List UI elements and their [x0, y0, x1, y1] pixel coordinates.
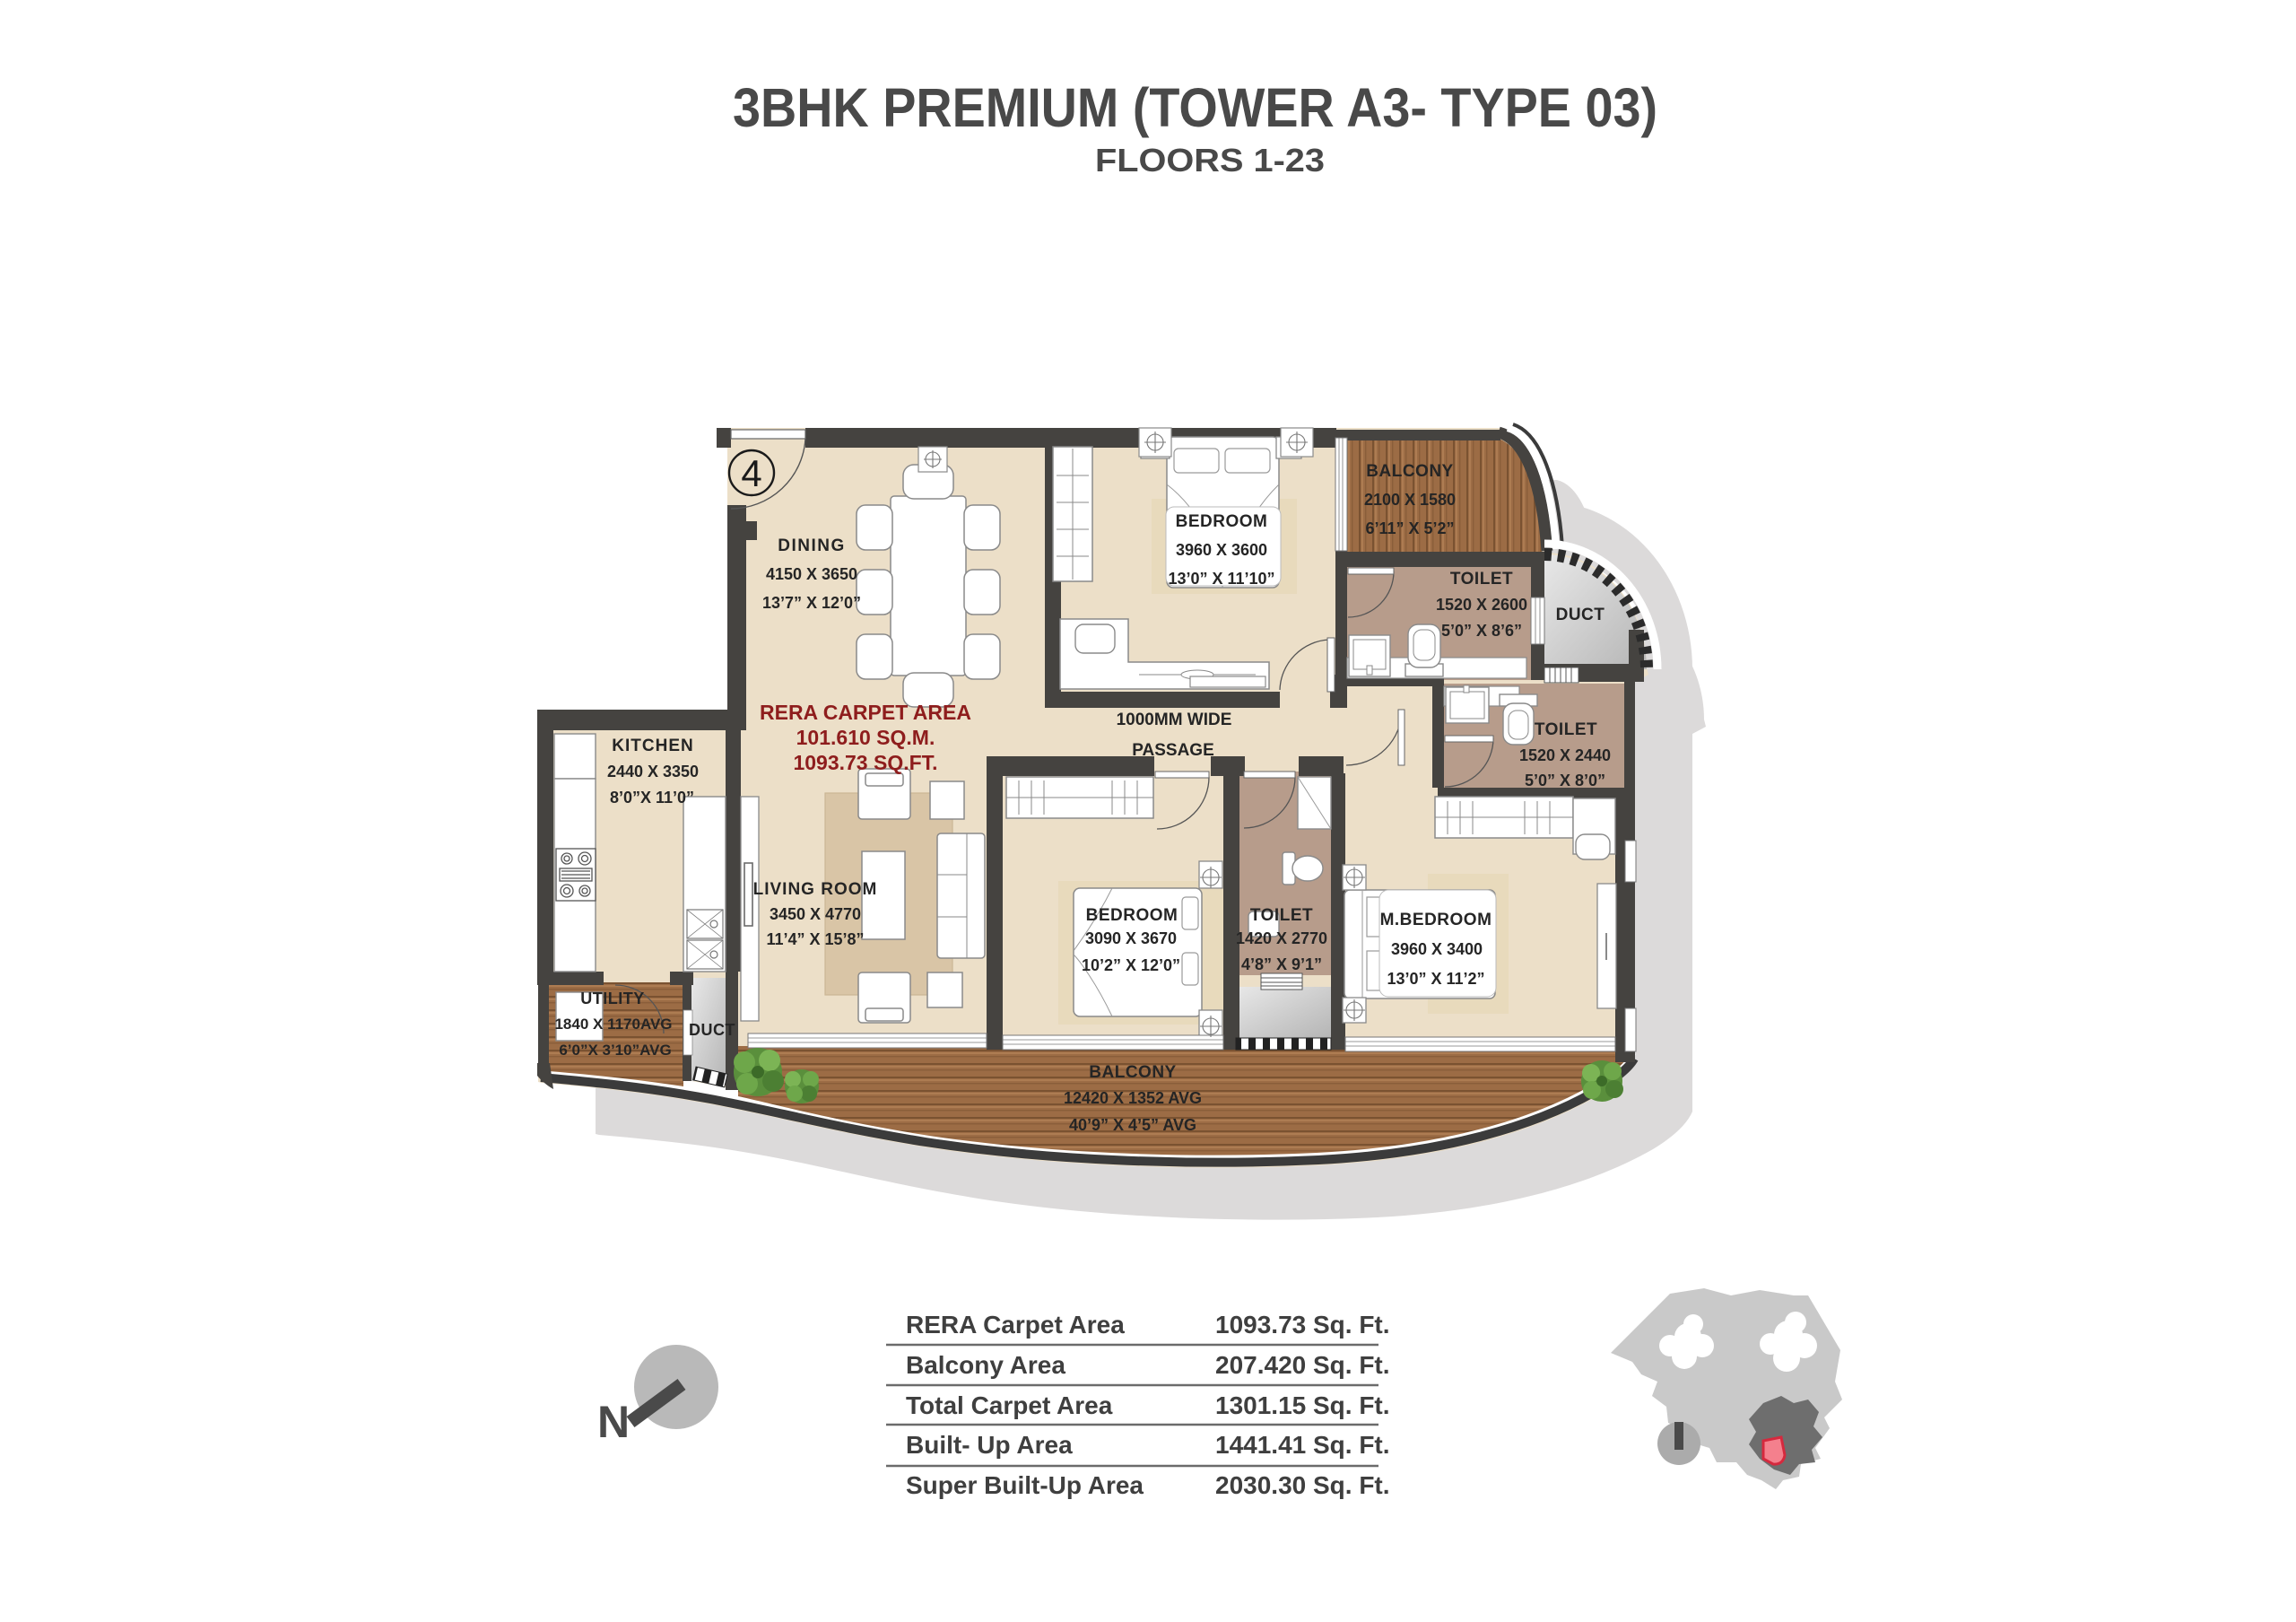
- svg-text:6’0”X 3’10”AVG: 6’0”X 3’10”AVG: [559, 1042, 671, 1059]
- svg-text:12420 X 1352 AVG: 12420 X 1352 AVG: [1064, 1089, 1202, 1107]
- svg-text:Super Built-Up Area: Super Built-Up Area: [906, 1471, 1144, 1499]
- svg-text:207.420 Sq. Ft.: 207.420 Sq. Ft.: [1215, 1351, 1390, 1379]
- svg-text:2100 X 1580: 2100 X 1580: [1364, 491, 1456, 509]
- svg-text:4150 X 3650: 4150 X 3650: [766, 565, 857, 583]
- svg-text:1093.73 SQ.FT.: 1093.73 SQ.FT.: [793, 751, 937, 774]
- svg-text:2030.30 Sq. Ft.: 2030.30 Sq. Ft.: [1215, 1471, 1390, 1499]
- svg-text:13’7” X 12’0”: 13’7” X 12’0”: [762, 594, 861, 612]
- svg-text:N: N: [597, 1397, 630, 1447]
- svg-text:1420 X 2770: 1420 X 2770: [1236, 929, 1327, 947]
- svg-text:TOILET: TOILET: [1450, 570, 1513, 589]
- svg-text:BEDROOM: BEDROOM: [1086, 906, 1178, 925]
- svg-text:RERA CARPET AREA: RERA CARPET AREA: [760, 701, 971, 724]
- svg-text:Balcony Area: Balcony Area: [906, 1351, 1065, 1379]
- svg-text:1520 X 2440: 1520 X 2440: [1519, 746, 1611, 764]
- svg-text:1093.73 Sq. Ft.: 1093.73 Sq. Ft.: [1215, 1311, 1390, 1339]
- svg-text:PASSAGE: PASSAGE: [1132, 741, 1214, 760]
- svg-text:2440 X 3350: 2440 X 3350: [607, 763, 699, 780]
- svg-text:6’11” X 5’2”: 6’11” X 5’2”: [1365, 519, 1454, 537]
- svg-text:UTILITY: UTILITY: [580, 990, 645, 1007]
- svg-text:8’0”X 11’0”: 8’0”X 11’0”: [610, 789, 694, 807]
- svg-text:10’2” X 12’0”: 10’2” X 12’0”: [1082, 956, 1180, 974]
- svg-text:40’9” X 4’5” AVG: 40’9” X 4’5” AVG: [1069, 1116, 1196, 1134]
- svg-text:3450 X 4770: 3450 X 4770: [770, 905, 861, 923]
- svg-text:13’0” X 11’2”: 13’0” X 11’2”: [1387, 970, 1484, 988]
- svg-text:FLOORS 1-23: FLOORS 1-23: [1095, 142, 1325, 179]
- svg-text:1441.41 Sq. Ft.: 1441.41 Sq. Ft.: [1215, 1431, 1390, 1459]
- svg-text:BEDROOM: BEDROOM: [1176, 512, 1268, 531]
- svg-text:1520 X 2600: 1520 X 2600: [1436, 596, 1527, 614]
- svg-text:Built- Up Area: Built- Up Area: [906, 1431, 1073, 1459]
- svg-text:BALCONY: BALCONY: [1089, 1063, 1176, 1082]
- svg-text:KITCHEN: KITCHEN: [612, 737, 693, 755]
- svg-text:M.BEDROOM: M.BEDROOM: [1380, 911, 1492, 929]
- svg-text:RERA Carpet Area: RERA Carpet Area: [906, 1311, 1125, 1339]
- svg-text:Total Carpet Area: Total Carpet Area: [906, 1391, 1113, 1419]
- svg-text:3090 X 3670: 3090 X 3670: [1085, 929, 1177, 947]
- svg-text:4’8” X 9’1”: 4’8” X 9’1”: [1241, 955, 1322, 973]
- svg-text:DINING: DINING: [778, 536, 846, 555]
- svg-text:DUCT: DUCT: [1556, 606, 1605, 624]
- svg-text:TOILET: TOILET: [1250, 906, 1313, 925]
- svg-text:5’0” X 8’0”: 5’0” X 8’0”: [1525, 772, 1605, 789]
- svg-text:DUCT: DUCT: [689, 1021, 735, 1039]
- svg-text:3960 X 3400: 3960 X 3400: [1391, 940, 1483, 958]
- svg-text:1301.15 Sq. Ft.: 1301.15 Sq. Ft.: [1215, 1391, 1390, 1419]
- svg-text:BALCONY: BALCONY: [1366, 462, 1453, 481]
- svg-text:13’0” X 11’10”: 13’0” X 11’10”: [1168, 570, 1274, 588]
- svg-text:3960 X 3600: 3960 X 3600: [1176, 541, 1267, 559]
- svg-text:5’0” X 8’6”: 5’0” X 8’6”: [1441, 622, 1522, 640]
- svg-text:1840 X 1170AVG: 1840 X 1170AVG: [554, 1016, 672, 1033]
- svg-text:101.610 SQ.M.: 101.610 SQ.M.: [796, 726, 935, 749]
- svg-text:LIVING ROOM: LIVING ROOM: [753, 880, 878, 899]
- svg-text:11’4” X 15’8”: 11’4” X 15’8”: [766, 930, 864, 948]
- svg-text:TOILET: TOILET: [1535, 720, 1597, 739]
- svg-text:4: 4: [741, 452, 761, 494]
- svg-text:1000MM WIDE: 1000MM WIDE: [1117, 711, 1232, 729]
- svg-text:3BHK PREMIUM (TOWER A3- TYPE 0: 3BHK PREMIUM (TOWER A3- TYPE 03): [733, 77, 1657, 138]
